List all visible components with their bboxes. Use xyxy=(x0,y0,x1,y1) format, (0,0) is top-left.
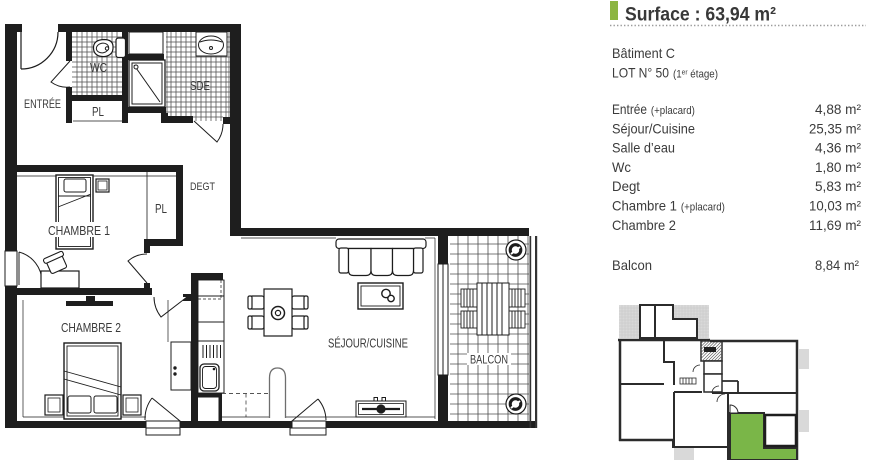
svg-text:1,80 m²: 1,80 m² xyxy=(815,159,861,175)
svg-text:(1er étage): (1er étage) xyxy=(673,68,718,81)
svg-text:Salle d’eau: Salle d’eau xyxy=(612,140,675,156)
svg-text:SÉJOUR/CUISINE: SÉJOUR/CUISINE xyxy=(328,336,408,351)
svg-text:11,69 m²: 11,69 m² xyxy=(809,217,861,233)
svg-text:Bâtiment C: Bâtiment C xyxy=(612,45,675,61)
svg-text:CHAMBRE 1: CHAMBRE 1 xyxy=(48,224,110,238)
svg-text:DEGT: DEGT xyxy=(190,181,215,193)
svg-text:PL: PL xyxy=(92,105,104,119)
svg-text:4,36 m²: 4,36 m² xyxy=(815,140,861,156)
svg-text:10,03 m²: 10,03 m² xyxy=(809,198,861,214)
svg-text:WC: WC xyxy=(90,61,107,75)
svg-text:Surface : 63,94 m²: Surface : 63,94 m² xyxy=(625,5,776,26)
svg-text:ENTRÉE: ENTRÉE xyxy=(24,96,61,111)
svg-text:LOT N° 50: LOT N° 50 xyxy=(612,65,669,81)
svg-text:5,83 m²: 5,83 m² xyxy=(815,178,861,194)
svg-text:PL: PL xyxy=(155,202,167,216)
svg-text:BALCON: BALCON xyxy=(470,355,508,367)
svg-text:4,88 m²: 4,88 m² xyxy=(815,101,861,117)
svg-text:Chambre 2: Chambre 2 xyxy=(612,217,676,233)
svg-text:SDE: SDE xyxy=(190,79,210,93)
svg-text:25,35 m²: 25,35 m² xyxy=(809,120,861,136)
svg-text:8,84 m²: 8,84 m² xyxy=(815,257,859,273)
svg-text:Séjour/Cuisine: Séjour/Cuisine xyxy=(612,120,695,136)
svg-text:Degt: Degt xyxy=(612,178,640,194)
svg-text:Balcon: Balcon xyxy=(612,257,652,273)
svg-text:Wc: Wc xyxy=(612,159,631,175)
svg-text:CHAMBRE 2: CHAMBRE 2 xyxy=(61,321,121,335)
